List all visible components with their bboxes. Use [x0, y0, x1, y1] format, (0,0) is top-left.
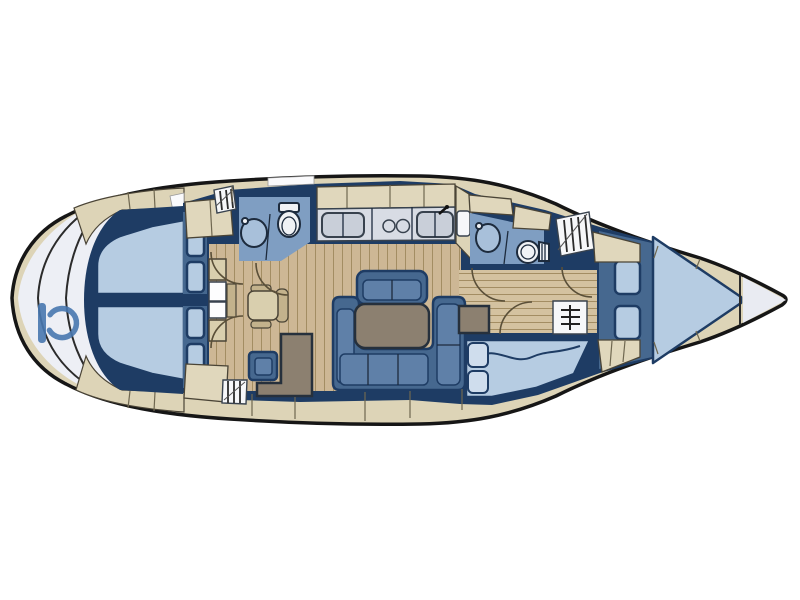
- yacht-layout-svg: [0, 0, 800, 600]
- bow-tip: [740, 275, 786, 325]
- deck-hatch-icon-forward: [556, 212, 594, 256]
- settee-cushion-bottom: [340, 354, 428, 385]
- toilet-icon-fwd: [517, 241, 549, 263]
- deck-hatch-icon-aft-port: [214, 186, 236, 213]
- vberth-cushion-top: [615, 261, 640, 294]
- chart-table-edge: [227, 284, 236, 317]
- galley-lockers: [317, 184, 455, 209]
- washbasin-icon: [241, 218, 267, 247]
- corridor-locker: [459, 306, 489, 333]
- sink-icon: [322, 213, 364, 237]
- toilet-icon: [278, 203, 300, 237]
- stool: [249, 352, 277, 380]
- shelf-unit-icon: [553, 301, 587, 334]
- chart-table-panel-1: [209, 282, 226, 301]
- deck-hatch-icon-aft-starboard: [222, 380, 247, 404]
- chart-table-panel-2: [209, 302, 226, 318]
- nav-seat: [248, 285, 288, 328]
- companionway-panel: [457, 211, 470, 236]
- washbasin-icon-fwd: [476, 223, 500, 252]
- vberth-cushion-bottom: [615, 306, 640, 339]
- deck-sliver-mid: [268, 176, 314, 186]
- saloon-table: [355, 304, 429, 348]
- side-bench: [357, 271, 427, 304]
- yacht-floor-plan-diagram: [0, 0, 800, 600]
